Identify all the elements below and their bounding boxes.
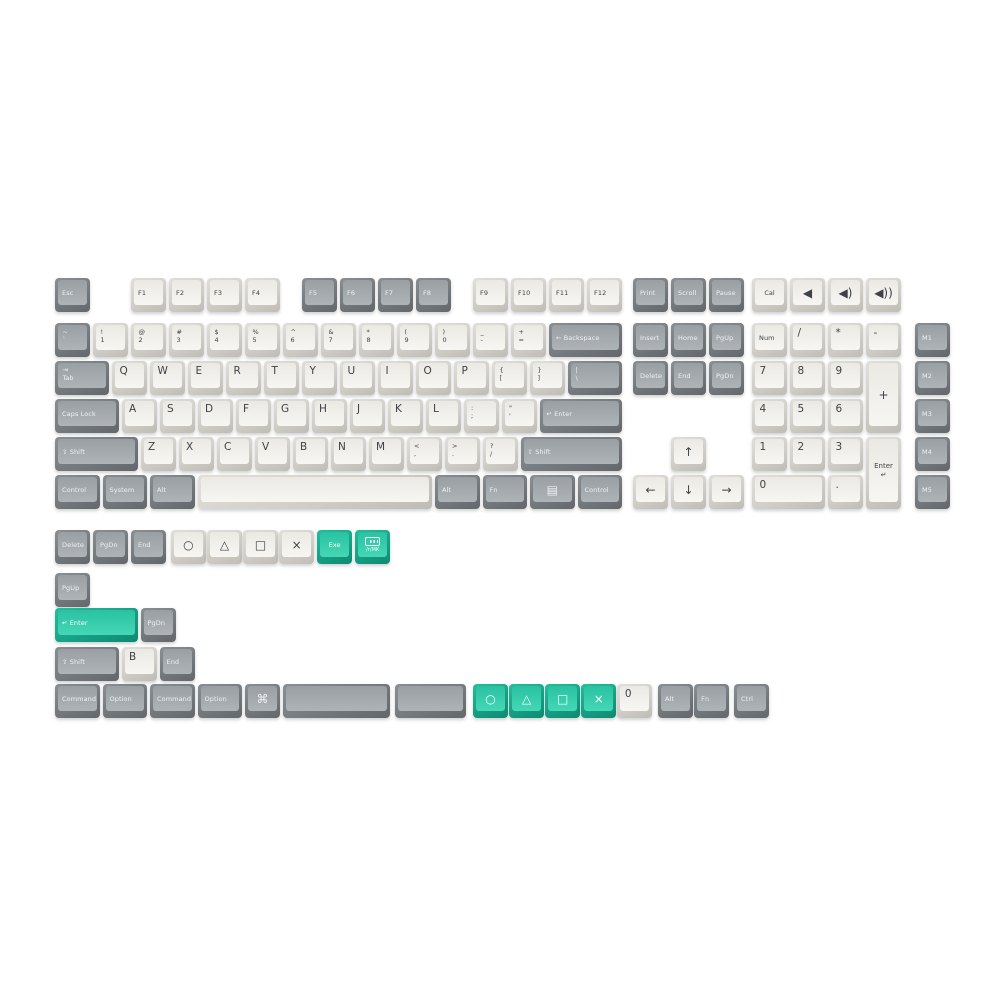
key-extra-enter: ↵ Enter: [55, 608, 138, 642]
key-legend: V: [262, 441, 287, 453]
key-bracket-left: {[: [492, 361, 527, 395]
key-f3: F3: [207, 278, 242, 312]
keycap-top: Cal: [755, 280, 784, 305]
key-f1: F1: [131, 278, 166, 312]
keycap-top: E: [191, 363, 220, 388]
keycap-top: ▤: [533, 477, 572, 502]
key-legend: ;: [471, 412, 496, 420]
key-ps-cross: ×: [279, 530, 314, 564]
key-legend: Command: [157, 695, 191, 703]
key-legend: M1: [922, 334, 932, 342]
key-ps-circle: ○: [171, 530, 206, 564]
key-legend: F9: [480, 289, 488, 297]
key-legend: R: [234, 365, 259, 377]
keycap-top: Option: [106, 686, 145, 711]
key-legend: PgDn: [148, 619, 166, 627]
keycap-top: "': [505, 401, 534, 426]
keycap-top: F6: [343, 280, 372, 305]
key-period: >.: [445, 437, 480, 471]
key-legend: O: [424, 365, 449, 377]
key-grave: ~`: [55, 323, 90, 357]
key-legend: F11: [556, 289, 568, 297]
keycap-top: F9: [476, 280, 505, 305]
key-legend: K: [395, 403, 420, 415]
key-extra-pgdn: PgDn: [93, 530, 128, 564]
keycap-top: □: [246, 532, 275, 557]
key-legend: 1: [101, 336, 126, 344]
key-alt-left: Alt: [150, 475, 195, 509]
keycap-top: ◀)): [869, 280, 898, 305]
key-legend: .: [452, 450, 477, 458]
key-legend: M2: [922, 372, 932, 380]
keycap-top: W: [153, 363, 182, 388]
key-np-enter: Enter↵: [866, 437, 901, 509]
keycap-top: ⇧ Shift: [58, 649, 116, 674]
keycap-top: F12: [590, 280, 619, 305]
keycap-top: :;: [467, 401, 496, 426]
keycap-top: 1: [755, 439, 784, 464]
keycap-top: Enter↵: [869, 439, 898, 502]
key-legend: 7: [760, 365, 785, 377]
keycap-top: M4: [918, 439, 947, 464]
key-legend: Q: [120, 365, 145, 377]
key-mk-logo: /r/MK: [355, 530, 390, 564]
key-arrow-right: →: [709, 475, 744, 509]
key-np-4: 4: [752, 399, 787, 433]
key-arrow-up: ↑: [671, 437, 706, 471]
keycap-top: Fn: [486, 477, 525, 502]
key-np-plus: +: [866, 361, 901, 433]
keycap-top: Home: [674, 325, 703, 350]
key-tab: ⇥Tab: [55, 361, 109, 395]
key-bracket-right: }]: [530, 361, 565, 395]
key-legend: ○: [485, 692, 495, 706]
keycap-top: &7: [324, 325, 353, 350]
key-legend: ~: [63, 328, 88, 336]
key-alt-right: Alt: [435, 475, 480, 509]
keycap-top: Q: [115, 363, 144, 388]
keycap-top: End: [674, 363, 703, 388]
key-legend: Option: [205, 695, 227, 703]
key-legend: -: [874, 327, 899, 339]
key-legend: System: [110, 486, 135, 494]
keycap-top: *: [831, 325, 860, 350]
keycap-top: /r/MK: [358, 532, 387, 557]
key-extra-pgdn-2: PgDn: [141, 608, 176, 642]
keycap-top: B: [125, 649, 154, 674]
keycap-top: ^6: [286, 325, 315, 350]
key-extra-zero: 0: [617, 684, 652, 718]
key-minus: _-: [473, 323, 508, 357]
key-y: Y: [302, 361, 337, 395]
keycap-top: ↓: [674, 477, 703, 502]
key-legend: End: [167, 658, 180, 666]
keycap-top: )0: [438, 325, 467, 350]
key-enter: ↵ Enter: [540, 399, 623, 433]
keycap-top: +: [869, 363, 898, 426]
key-9: (9: [397, 323, 432, 357]
keycap-top: PgUp: [712, 325, 741, 350]
key-legend: Caps Lock: [62, 410, 96, 418]
key-legend: {: [500, 366, 525, 374]
key-e: E: [188, 361, 223, 395]
key-legend: 9: [836, 365, 861, 377]
key-legend: □: [557, 692, 568, 706]
key-legend: 3: [177, 336, 202, 344]
key-control-right: Control: [578, 475, 623, 509]
key-np-8: 8: [790, 361, 825, 395]
keycap-top: M5: [918, 477, 947, 502]
key-2: @2: [131, 323, 166, 357]
keycap-top: Exe: [320, 532, 349, 557]
keycap-top: N: [334, 439, 363, 464]
keycap-top: +=: [514, 325, 543, 350]
key-legend: S: [167, 403, 192, 415]
key-legend: L: [433, 403, 458, 415]
key-np-0: 0: [752, 475, 825, 509]
keycap-top: K: [391, 401, 420, 426]
key-end: End: [671, 361, 706, 395]
key-legend: M: [376, 441, 401, 453]
key-extra-fn: Fn: [694, 684, 729, 718]
key-legend: G: [281, 403, 306, 415]
keycap-top: ◀): [831, 280, 860, 305]
key-comma: <,: [407, 437, 442, 471]
key-f6: F6: [340, 278, 375, 312]
keycap-top: [398, 686, 463, 711]
key-l: L: [426, 399, 461, 433]
key-legend: 5: [253, 336, 278, 344]
keycap-top: D: [201, 401, 230, 426]
key-legend: ": [509, 404, 534, 412]
key-f10: F10: [511, 278, 546, 312]
keycap-top: Fn: [697, 686, 726, 711]
key-legend: End: [138, 541, 151, 549]
key-legend: (: [405, 328, 430, 336]
key-s: S: [160, 399, 195, 433]
key-legend: $: [215, 328, 240, 336]
key-legend: C: [224, 441, 249, 453]
keycap-top: I: [381, 363, 410, 388]
keycap-top: Option: [201, 686, 240, 711]
key-legend: Y: [310, 365, 335, 377]
key-legend: Pause: [716, 289, 736, 297]
key-legend: 0: [625, 688, 650, 700]
key-legend: F12: [594, 289, 606, 297]
key-legend: F6: [347, 289, 355, 297]
keycap-top: ×: [282, 532, 311, 557]
key-legend: [: [500, 374, 525, 382]
key-np-6: 6: [828, 399, 863, 433]
keycap-top: △: [210, 532, 239, 557]
keyboard-icon: [365, 537, 380, 546]
key-ps-square: □: [243, 530, 278, 564]
key-legend: ◀)): [874, 286, 893, 300]
key-legend: +: [519, 328, 544, 336]
key-legend: D: [205, 403, 230, 415]
keycap-top: Caps Lock: [58, 401, 116, 426]
key-legend: F3: [214, 289, 222, 297]
keycap-top: _-: [476, 325, 505, 350]
key-backspace: ← Backspace: [549, 323, 622, 357]
key-extra-b: B: [122, 647, 157, 681]
key-legend: Fn: [701, 695, 709, 703]
keycap-top: M3: [918, 401, 947, 426]
keycap-top: □: [548, 686, 577, 711]
key-legend: *: [367, 328, 392, 336]
key-h: H: [312, 399, 347, 433]
key-legend: }: [538, 366, 563, 374]
key-np-slash: /: [790, 323, 825, 357]
keycap-top: PgUp: [58, 575, 87, 600]
key-blank-bar-2: [395, 684, 466, 718]
key-f9: F9: [473, 278, 508, 312]
key-np-dot: .: [828, 475, 863, 509]
key-legend: Scroll: [678, 289, 696, 297]
keycap-top: F3: [210, 280, 239, 305]
keycap-top: C: [220, 439, 249, 464]
key-legend: 6: [291, 336, 316, 344]
keycap-top: ×: [584, 686, 613, 711]
keycap-top: PgDn: [96, 532, 125, 557]
key-arrow-left: ←: [633, 475, 668, 509]
key-legend: ⇧ Shift: [62, 448, 85, 456]
keycap-top: ↵ Enter: [58, 610, 135, 635]
key-legend: 8: [798, 365, 823, 377]
key-extra-delete: Delete: [55, 530, 90, 564]
key-legend: B: [129, 651, 154, 663]
key-legend: ×: [594, 692, 604, 706]
key-legend: M5: [922, 486, 932, 494]
keycap-top: 0: [620, 686, 649, 711]
keycap-top: ⇧ Shift: [524, 439, 620, 464]
key-legend: F2: [176, 289, 184, 297]
keycap-top: End: [163, 649, 192, 674]
key-f5: F5: [302, 278, 337, 312]
keycap-top: P: [457, 363, 486, 388]
keycap-top: End: [134, 532, 163, 557]
key-equals: +=: [511, 323, 546, 357]
key-legend: &: [329, 328, 354, 336]
key-legend: N: [338, 441, 363, 453]
key-legend: ^: [291, 328, 316, 336]
keycap-top: Num: [755, 325, 784, 350]
key-0: )0: [435, 323, 470, 357]
key-g: G: [274, 399, 309, 433]
keycap-top: →: [712, 477, 741, 502]
key-legend: Fn: [490, 486, 498, 494]
key-legend: Delete: [640, 372, 662, 380]
key-legend: /r/MK: [366, 547, 379, 553]
keycap-top: T: [267, 363, 296, 388]
key-legend: 8: [367, 336, 392, 344]
key-k: K: [388, 399, 423, 433]
key-legend: Enter: [874, 462, 893, 471]
keycap-top: V: [258, 439, 287, 464]
key-legend: Command: [62, 695, 96, 703]
key-legend: PgUp: [716, 334, 733, 342]
key-exe: Exe: [317, 530, 352, 564]
key-extra-end-2: End: [160, 647, 195, 681]
key-legend: @: [139, 328, 164, 336]
key-cmd-symbol: ⌘: [245, 684, 280, 718]
key-option-1: Option: [103, 684, 148, 718]
key-legend: Control: [585, 486, 609, 494]
key-legend: :: [471, 404, 496, 412]
key-legend: ↵: [881, 471, 887, 480]
key-legend: =: [519, 336, 544, 344]
key-legend: End: [678, 372, 691, 380]
key-menu: ▤: [530, 475, 575, 509]
keycap-top: ◀: [793, 280, 822, 305]
keycap-top: R: [229, 363, 258, 388]
key-legend: ,: [414, 450, 439, 458]
keycap-top: Delete: [636, 363, 665, 388]
key-legend: ↵ Enter: [62, 619, 88, 627]
keycap-top: %5: [248, 325, 277, 350]
key-legend: 3: [836, 441, 861, 453]
keycap-top: X: [182, 439, 211, 464]
key-legend: U: [348, 365, 373, 377]
key-legend: 0: [443, 336, 468, 344]
keycap-top: [286, 686, 387, 711]
keycap-top: F7: [381, 280, 410, 305]
key-legend: W: [158, 365, 183, 377]
key-legend: 7: [329, 336, 354, 344]
keycap-top: F5: [305, 280, 334, 305]
key-3: #3: [169, 323, 204, 357]
keycap-top: [201, 477, 430, 502]
key-shift-right: ⇧ Shift: [521, 437, 623, 471]
keycap-top: Alt: [661, 686, 690, 711]
keycap-top: L: [429, 401, 458, 426]
key-legend: >: [452, 442, 477, 450]
key-r: R: [226, 361, 261, 395]
key-legend: Tab: [63, 374, 107, 382]
key-legend: ': [509, 412, 534, 420]
key-legend: ]: [538, 374, 563, 382]
key-ps-circle-teal: ○: [473, 684, 508, 718]
key-command-2: Command: [150, 684, 195, 718]
keycap-top: A: [125, 401, 154, 426]
key-extra-shift: ⇧ Shift: [55, 647, 119, 681]
keycap-top: B: [296, 439, 325, 464]
key-legend: △: [522, 692, 531, 706]
key-p: P: [454, 361, 489, 395]
key-volume-down: ◀): [828, 278, 863, 312]
key-legend: F: [243, 403, 268, 415]
key-extra-alt: Alt: [658, 684, 693, 718]
key-legend: □: [255, 538, 266, 552]
keycap-top: 3: [831, 439, 860, 464]
key-cal: Cal: [752, 278, 787, 312]
keycap-top: $4: [210, 325, 239, 350]
keycap-top: 2: [793, 439, 822, 464]
keycap-top: Y: [305, 363, 334, 388]
key-f4: F4: [245, 278, 280, 312]
key-m4: M4: [915, 437, 950, 471]
key-legend: Ctrl: [741, 695, 753, 703]
keycap-top: 6: [831, 401, 860, 426]
key-legend: F5: [309, 289, 317, 297]
key-f8: F8: [416, 278, 451, 312]
keycap-top: {[: [495, 363, 524, 388]
key-extra-pgup: PgUp: [55, 573, 90, 607]
key-option-2: Option: [198, 684, 243, 718]
key-command-1: Command: [55, 684, 100, 718]
key-q: Q: [112, 361, 147, 395]
keycap-top: }]: [533, 363, 562, 388]
keycap-top: #3: [172, 325, 201, 350]
key-legend: F4: [252, 289, 260, 297]
key-system: System: [103, 475, 148, 509]
keycap-top: ⇥Tab: [58, 363, 106, 388]
keycap-top: 9: [831, 363, 860, 388]
keycap-top: F8: [419, 280, 448, 305]
key-x: X: [179, 437, 214, 471]
keycap-top: Esc: [58, 280, 87, 305]
key-ps-cross-teal: ×: [581, 684, 616, 718]
key-legend: ◀: [803, 286, 812, 300]
key-legend: \: [576, 374, 620, 382]
key-legend: 4: [215, 336, 240, 344]
key-legend: 2: [798, 441, 823, 453]
key-ps-triangle-teal: △: [509, 684, 544, 718]
keycap-top: .: [831, 477, 860, 502]
key-extra-ctrl: Ctrl: [734, 684, 769, 718]
key-legend: Alt: [157, 486, 166, 494]
key-ps-square-teal: □: [545, 684, 580, 718]
keycap-top: !1: [96, 325, 125, 350]
key-legend: ↓: [683, 483, 693, 497]
key-f2: F2: [169, 278, 204, 312]
keycap-top: <,: [410, 439, 439, 464]
key-legend: Esc: [62, 289, 73, 297]
keycap-top: F: [239, 401, 268, 426]
keycap-top: 7: [755, 363, 784, 388]
key-caps-lock: Caps Lock: [55, 399, 119, 433]
key-legend: ◀): [839, 286, 853, 300]
key-legend: ▤: [547, 483, 558, 497]
key-legend: F10: [518, 289, 530, 297]
keycap-top: 8: [793, 363, 822, 388]
key-f: F: [236, 399, 271, 433]
key-4: $4: [207, 323, 242, 357]
key-legend: X: [186, 441, 211, 453]
key-legend: Option: [110, 695, 132, 703]
key-legend: T: [272, 365, 297, 377]
key-legend: +: [878, 388, 888, 402]
keycap-top: PgDn: [144, 610, 173, 635]
keycap-top: F2: [172, 280, 201, 305]
key-pgdn: PgDn: [709, 361, 744, 395]
key-legend: Alt: [665, 695, 674, 703]
keycap-top: M1: [918, 325, 947, 350]
key-control-left: Control: [55, 475, 100, 509]
key-u: U: [340, 361, 375, 395]
key-backslash: |\: [568, 361, 622, 395]
key-legend: △: [220, 538, 229, 552]
key-w: W: [150, 361, 185, 395]
key-legend: 6: [836, 403, 861, 415]
key-pgup: PgUp: [709, 323, 744, 357]
key-legend: ×: [292, 538, 302, 552]
key-legend: ○: [183, 538, 193, 552]
key-legend: 0: [760, 479, 823, 491]
keycap-top: -: [869, 325, 898, 350]
keycap-top: Print: [636, 280, 665, 305]
key-esc: Esc: [55, 278, 90, 312]
